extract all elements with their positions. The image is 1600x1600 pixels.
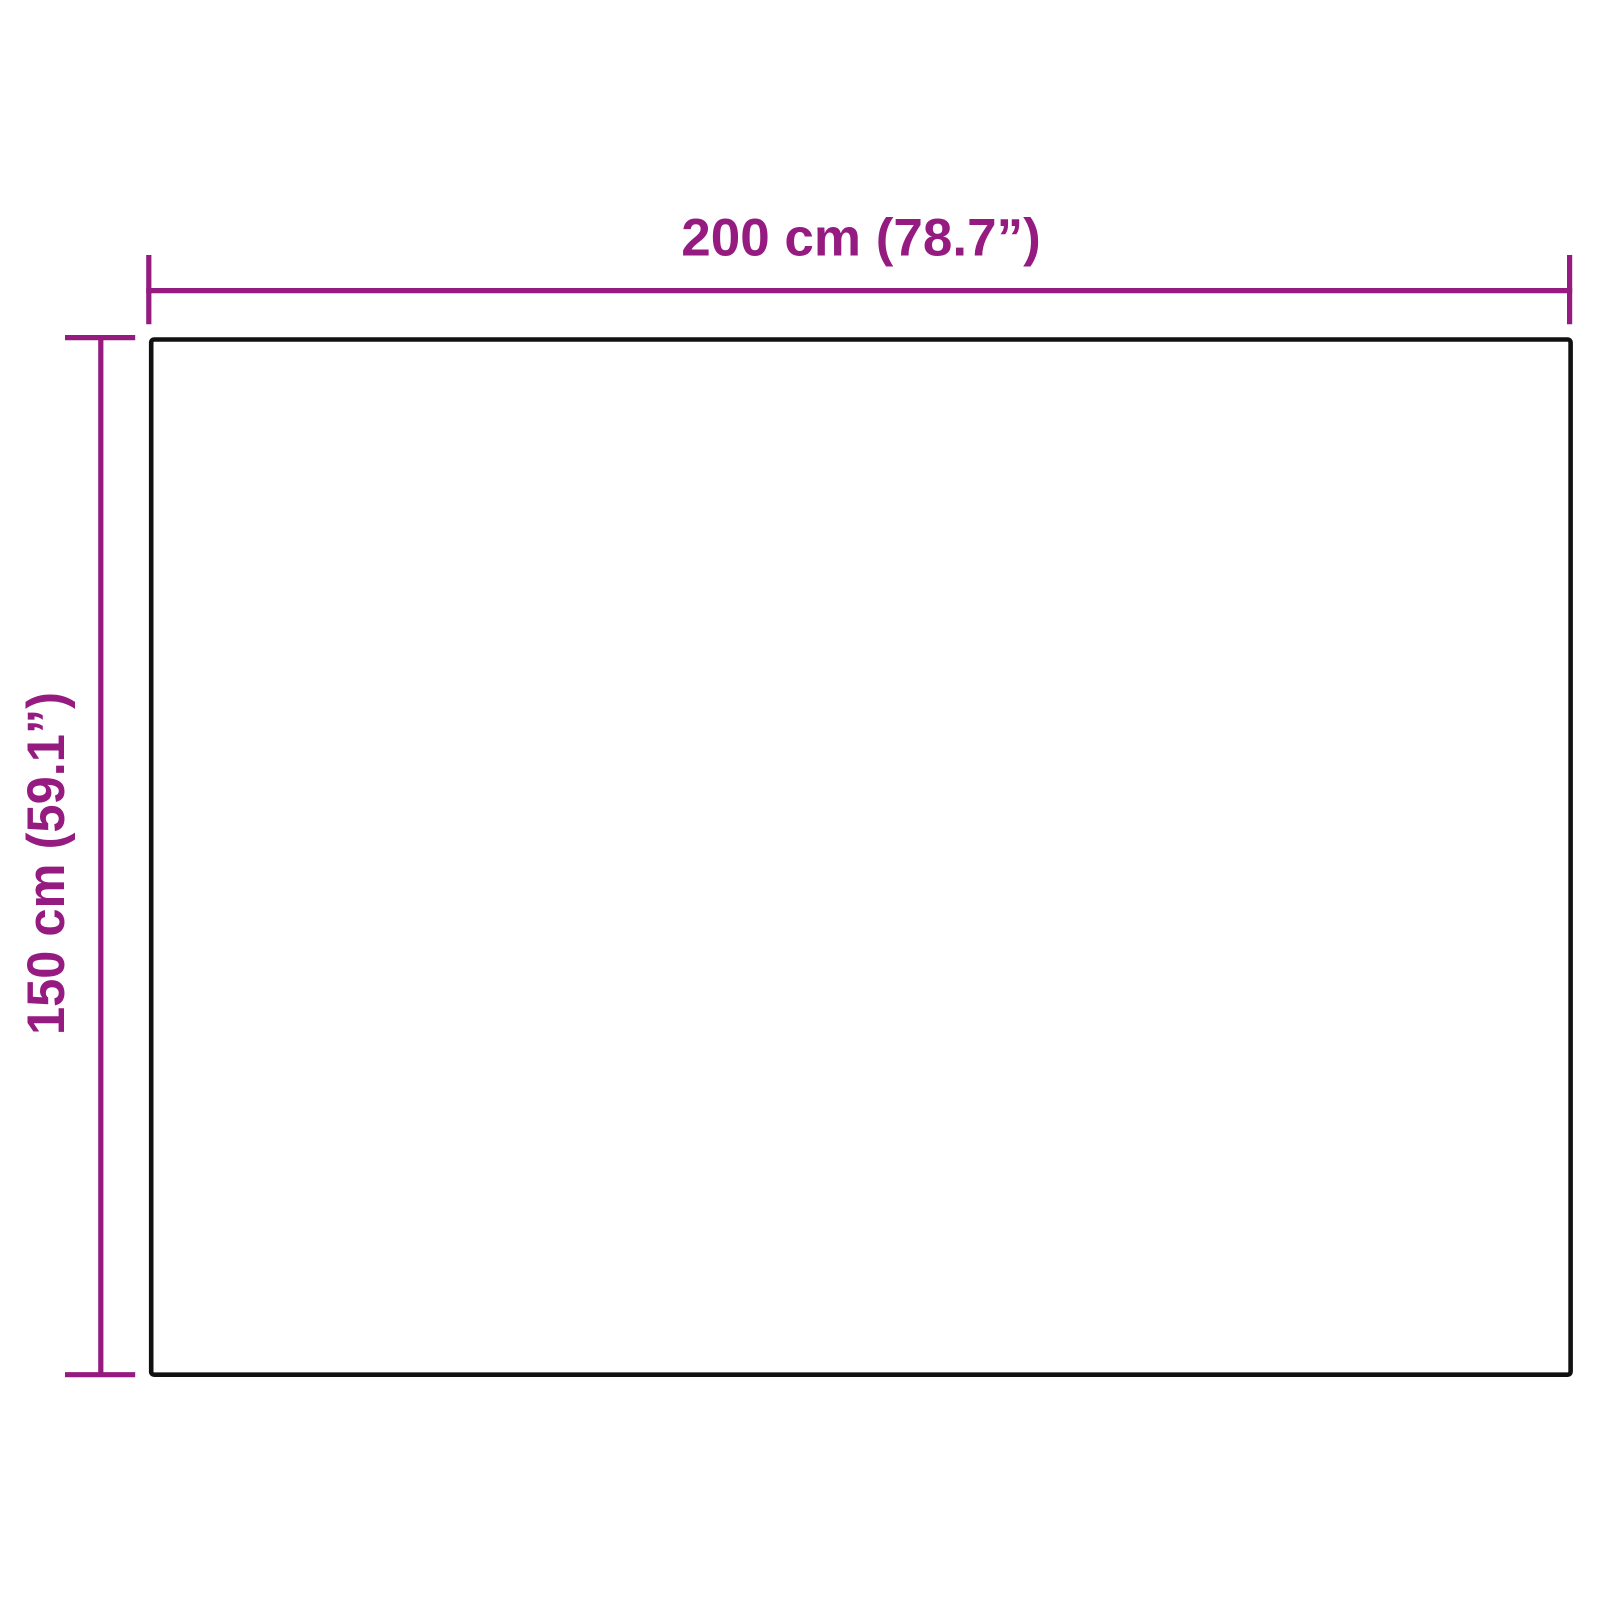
svg-text:200 cm (78.7”): 200 cm (78.7”) (681, 209, 1040, 268)
svg-text:150 cm (59.1”): 150 cm (59.1”) (16, 692, 75, 1035)
